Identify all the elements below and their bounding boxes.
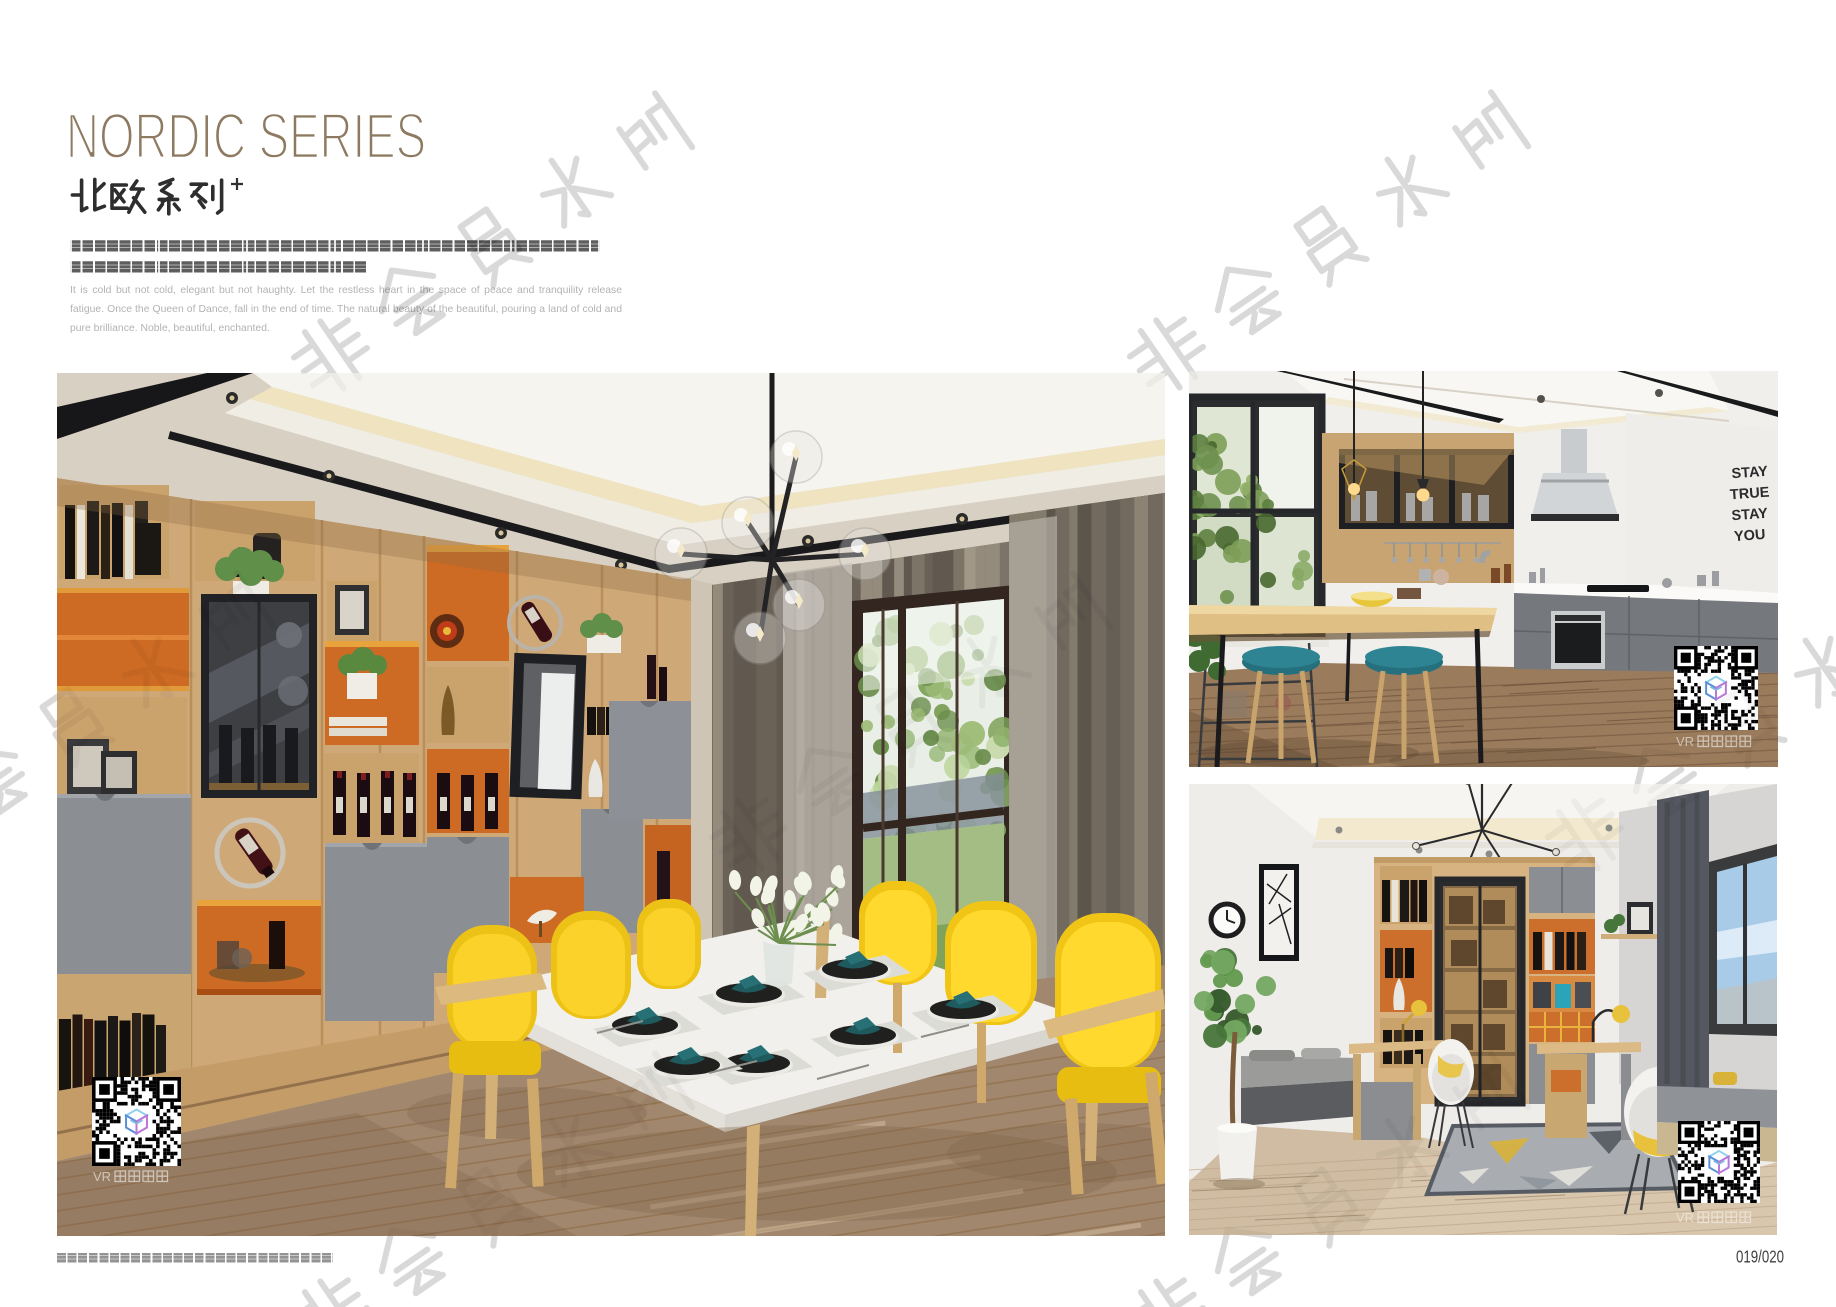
svg-text:019/020: 019/020 xyxy=(1736,1247,1784,1267)
svg-text:STAY: STAY xyxy=(1731,506,1769,525)
svg-text:VR: VR xyxy=(93,1169,111,1184)
svg-text:STAY: STAY xyxy=(1731,464,1769,483)
svg-text:TRUE: TRUE xyxy=(1729,485,1770,504)
svg-text:YOU: YOU xyxy=(1733,527,1765,545)
svg-text:VR: VR xyxy=(1676,1210,1694,1225)
svg-text:VR: VR xyxy=(1676,734,1694,749)
svg-text:NORDIC SERIES: NORDIC SERIES xyxy=(66,100,426,170)
